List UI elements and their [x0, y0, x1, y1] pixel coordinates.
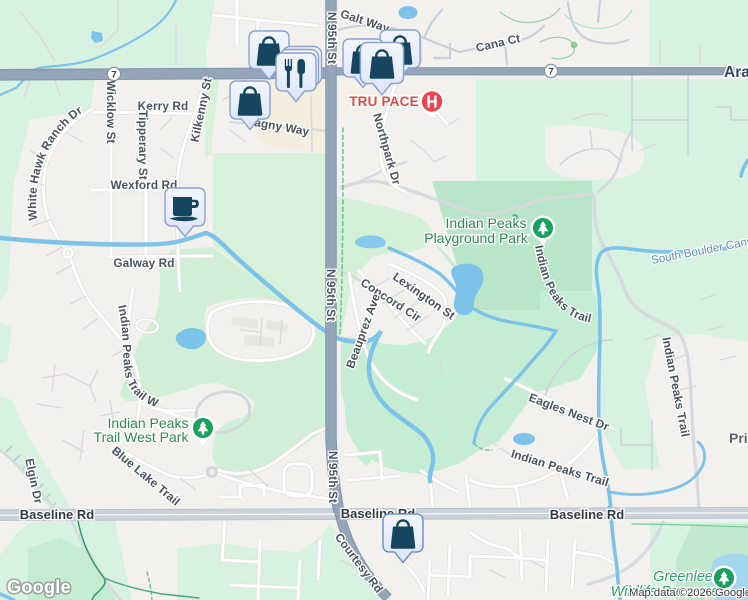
svg-text:Arapaho: Arapaho [724, 64, 748, 81]
svg-text:7: 7 [111, 70, 116, 81]
svg-text:TRU PACE: TRU PACE [349, 94, 419, 109]
svg-text:Baseline Rd: Baseline Rd [20, 507, 94, 522]
svg-text:Indian Peaks: Indian Peaks [446, 215, 527, 231]
svg-text:Google: Google [7, 577, 71, 597]
svg-text:Map data ©2026 Google: Map data ©2026 Google [629, 587, 748, 599]
svg-text:Wicklow St: Wicklow St [104, 80, 118, 143]
svg-text:Greenlee: Greenlee [653, 569, 713, 585]
svg-text:Pri: Pri [729, 430, 748, 446]
svg-text:Galway Rd: Galway Rd [113, 256, 174, 270]
svg-text:Playground Park: Playground Park [424, 230, 529, 246]
svg-text:N 95th St: N 95th St [326, 451, 340, 503]
svg-text:Tipperary St: Tipperary St [136, 110, 150, 180]
svg-text:Baseline Rd: Baseline Rd [550, 507, 624, 522]
svg-text:N 95th St: N 95th St [325, 12, 339, 64]
svg-text:Trail West Park: Trail West Park [94, 429, 190, 445]
svg-text:N 95th St: N 95th St [324, 269, 338, 321]
svg-text:7: 7 [548, 67, 553, 78]
